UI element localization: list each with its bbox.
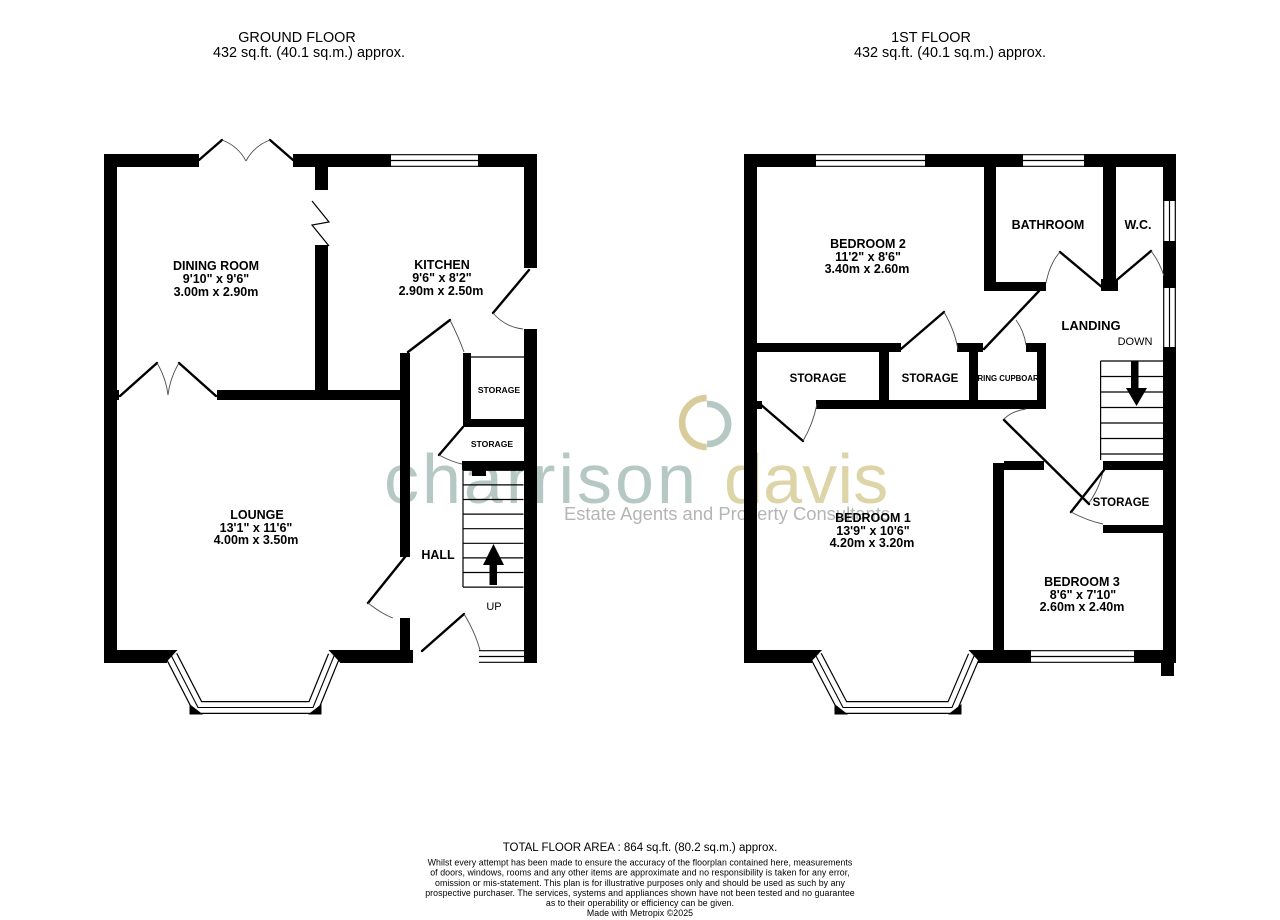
svg-text:W.C.: W.C. xyxy=(1124,218,1151,232)
svg-text:STORAGE: STORAGE xyxy=(471,439,514,449)
svg-text:Made with Metropix ©2025: Made with Metropix ©2025 xyxy=(587,908,693,918)
svg-text:omission or mis-statement. Thi: omission or mis-statement. This plan is … xyxy=(435,878,845,888)
svg-text:LOUNGE: LOUNGE xyxy=(230,508,283,522)
svg-text:BATHROOM: BATHROOM xyxy=(1012,218,1085,232)
svg-text:3.00m x 2.90m: 3.00m x 2.90m xyxy=(174,285,259,299)
svg-text:2.60m x 2.40m: 2.60m x 2.40m xyxy=(1040,600,1125,614)
svg-text:of doors, windows, rooms and a: of doors, windows, rooms and any other i… xyxy=(430,868,850,878)
svg-text:432 sq.ft. (40.1 sq.m.) approx: 432 sq.ft. (40.1 sq.m.) approx. xyxy=(854,45,1046,61)
svg-text:3.40m x 2.60m: 3.40m x 2.60m xyxy=(825,262,910,276)
svg-text:4.00m x 3.50m: 4.00m x 3.50m xyxy=(214,533,299,547)
svg-text:HALL: HALL xyxy=(421,548,455,562)
svg-text:STORAGE: STORAGE xyxy=(790,373,847,385)
svg-text:Whilst every attempt has been: Whilst every attempt has been made to en… xyxy=(428,858,853,868)
svg-text:DINING ROOM: DINING ROOM xyxy=(173,259,259,273)
svg-text:STORAGE: STORAGE xyxy=(1093,497,1150,509)
svg-text:STORAGE: STORAGE xyxy=(902,373,959,385)
svg-text:DOWN: DOWN xyxy=(1118,336,1153,348)
svg-text:BEDROOM 1: BEDROOM 1 xyxy=(835,511,911,525)
svg-text:STORAGE: STORAGE xyxy=(478,385,521,395)
svg-text:1ST FLOOR: 1ST FLOOR xyxy=(891,30,971,46)
svg-text:prospective purchaser. The ser: prospective purchaser. The services, sys… xyxy=(425,888,855,898)
svg-text:9'6" x 8'2": 9'6" x 8'2" xyxy=(412,271,472,285)
svg-text:BEDROOM 3: BEDROOM 3 xyxy=(1044,575,1120,589)
svg-text:2.90m x 2.50m: 2.90m x 2.50m xyxy=(399,284,484,298)
svg-text:KITCHEN: KITCHEN xyxy=(414,258,470,272)
svg-text:UP: UP xyxy=(486,601,501,613)
svg-text:4.20m x 3.20m: 4.20m x 3.20m xyxy=(830,536,915,550)
svg-text:LANDING: LANDING xyxy=(1061,318,1120,333)
svg-text:AIRING CUPBOARD: AIRING CUPBOARD xyxy=(970,374,1045,383)
svg-text:BEDROOM 2: BEDROOM 2 xyxy=(830,237,906,251)
svg-text:TOTAL FLOOR AREA : 864 sq.ft.: TOTAL FLOOR AREA : 864 sq.ft. (80.2 sq.m… xyxy=(503,842,778,854)
svg-text:as to their operability or eff: as to their operability or efficiency ca… xyxy=(546,898,734,908)
svg-text:432 sq.ft. (40.1 sq.m.) approx: 432 sq.ft. (40.1 sq.m.) approx. xyxy=(213,45,405,61)
svg-text:GROUND FLOOR: GROUND FLOOR xyxy=(238,30,356,46)
svg-text:9'10" x 9'6": 9'10" x 9'6" xyxy=(183,272,250,286)
